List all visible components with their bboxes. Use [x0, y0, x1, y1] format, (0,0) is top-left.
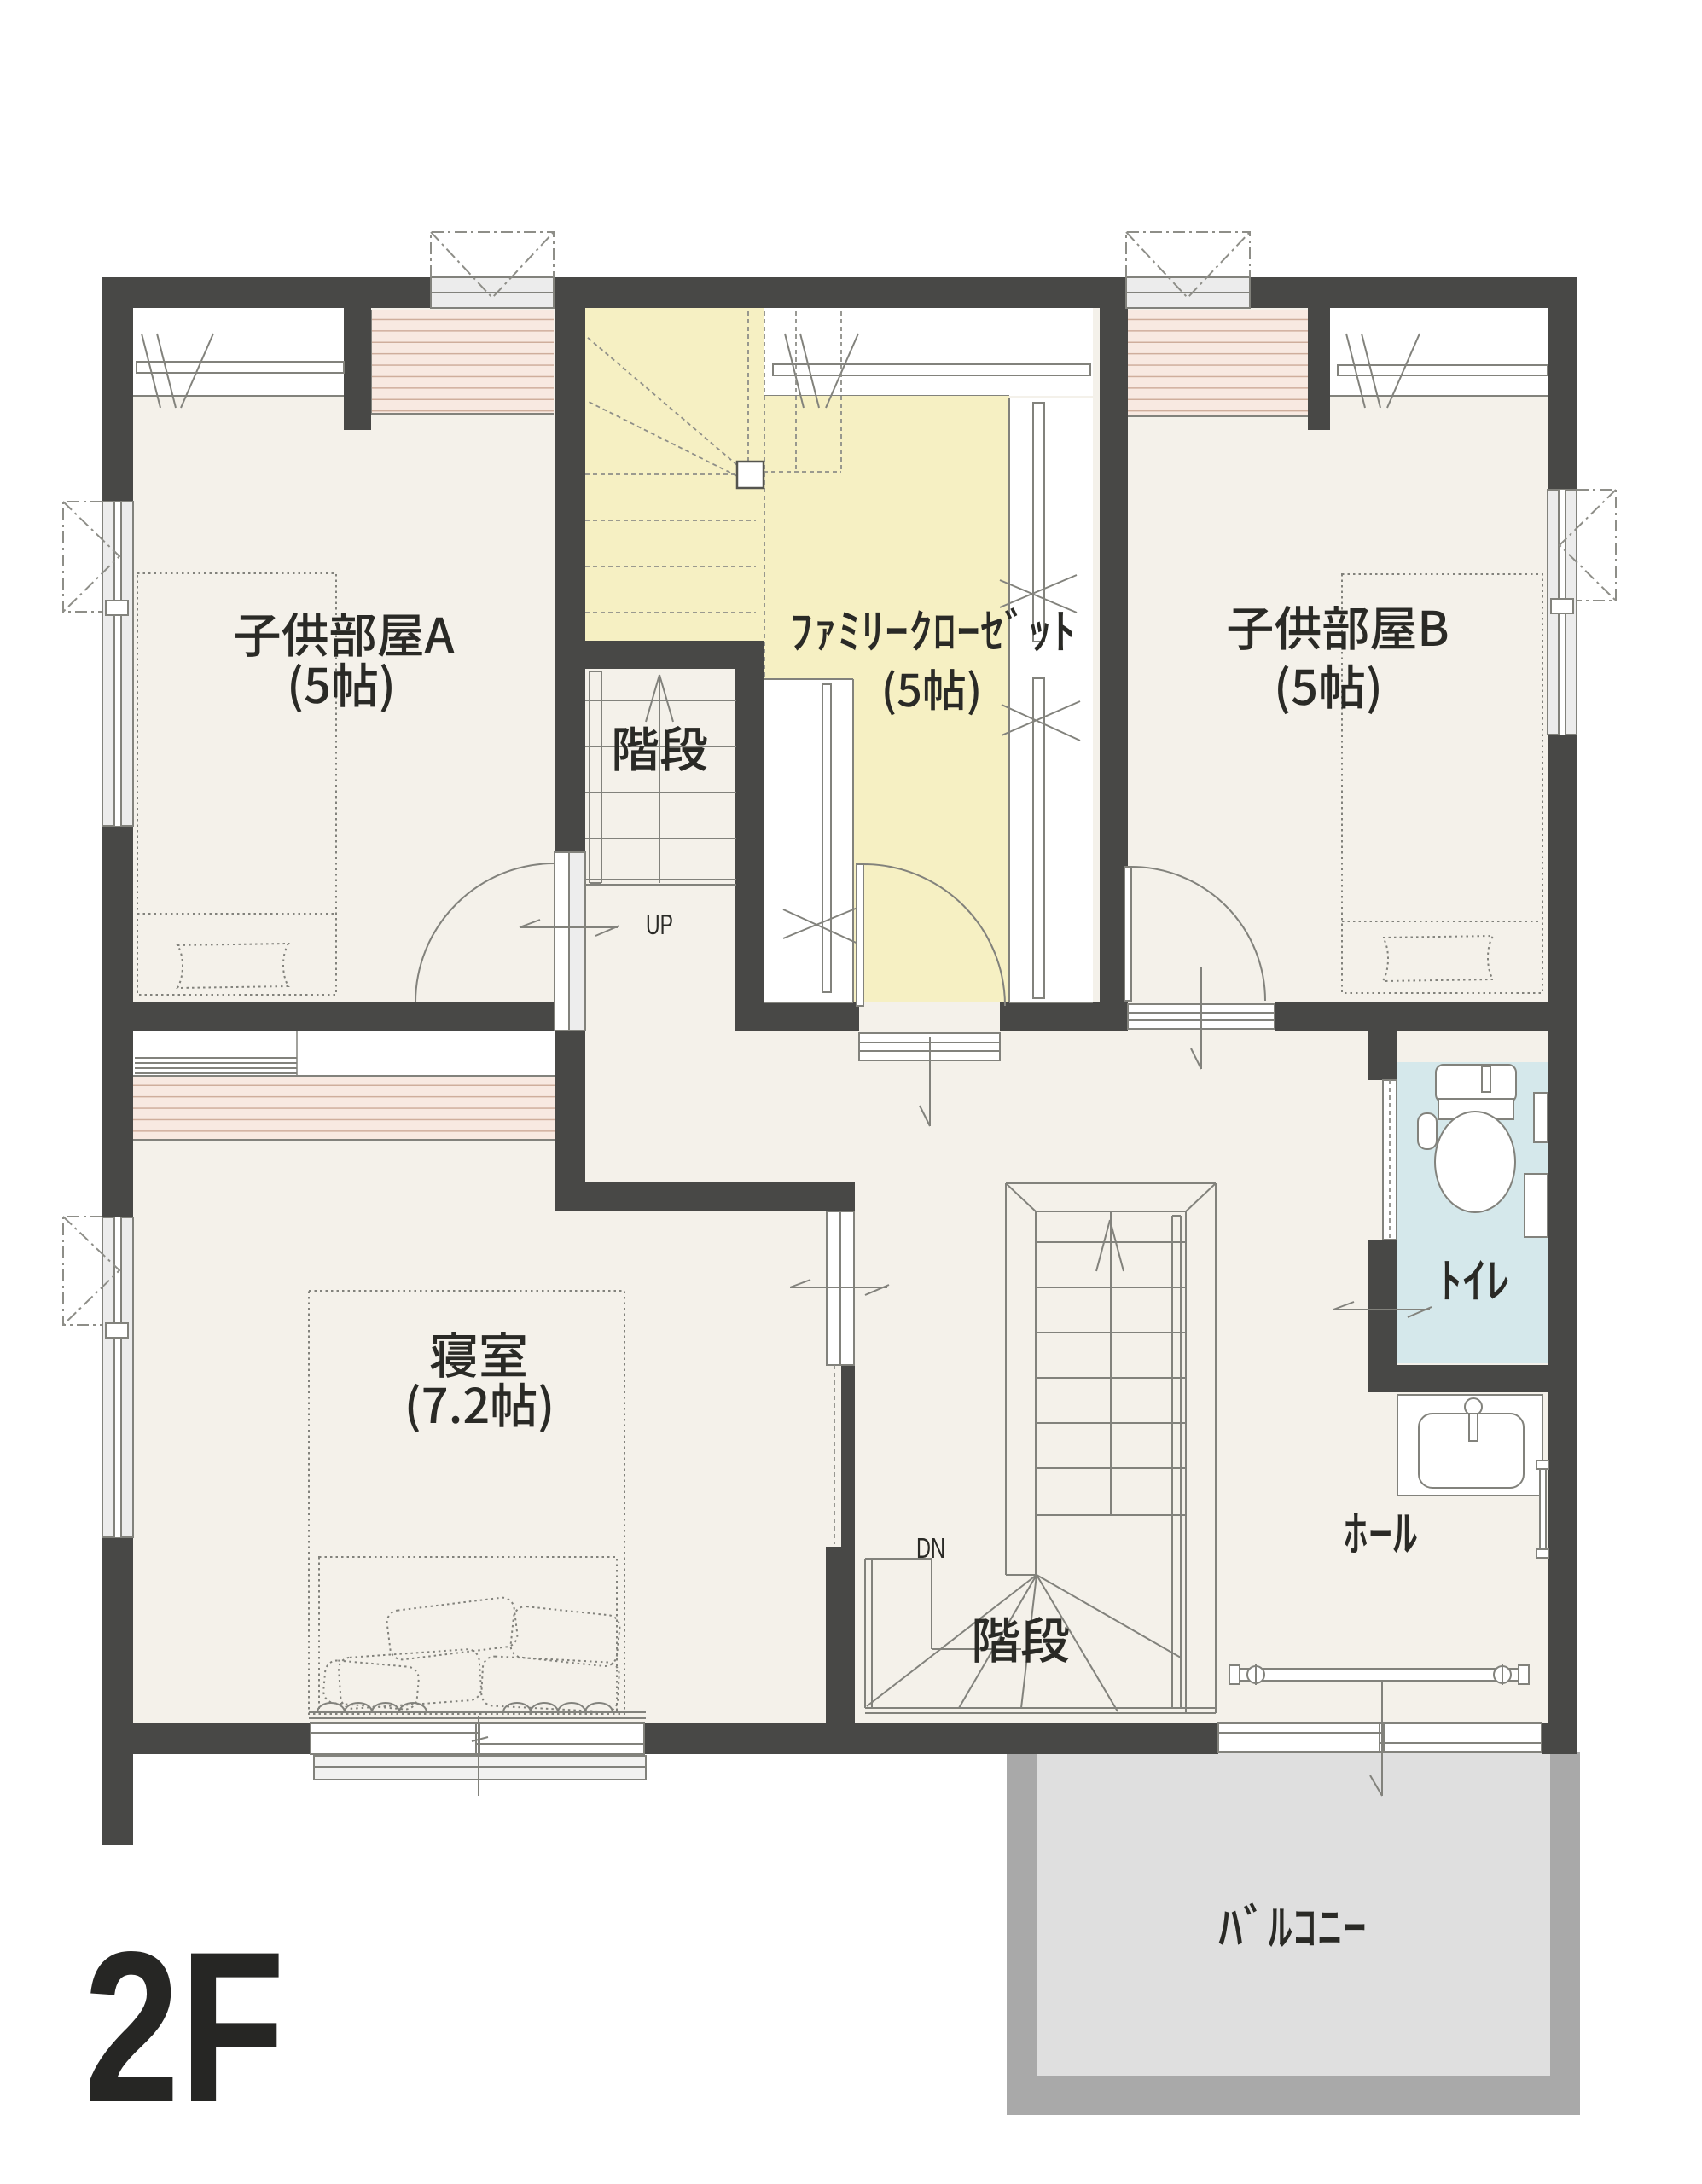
svg-text:DN: DN: [916, 1532, 945, 1564]
svg-text:2F: 2F: [84, 1908, 285, 2147]
svg-text:UP: UP: [646, 909, 673, 940]
